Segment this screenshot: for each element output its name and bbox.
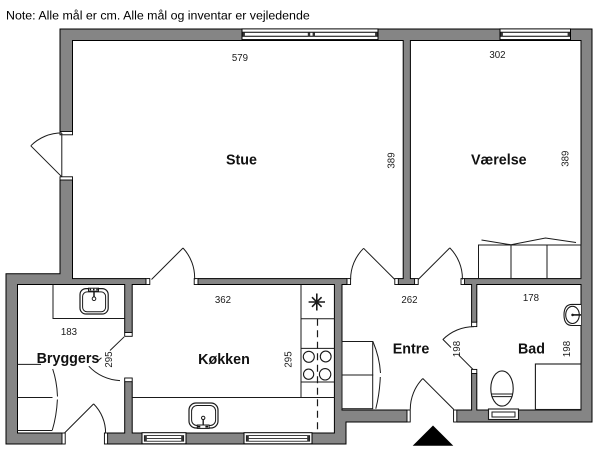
svg-text:302: 302 (489, 50, 505, 61)
svg-text:262: 262 (401, 295, 417, 306)
svg-text:295: 295 (284, 351, 295, 367)
svg-text:579: 579 (232, 53, 248, 64)
svg-text:183: 183 (61, 327, 77, 338)
svg-text:Bryggers: Bryggers (37, 351, 100, 367)
svg-text:198: 198 (452, 341, 463, 357)
svg-text:Stue: Stue (226, 152, 257, 168)
svg-text:389: 389 (387, 152, 398, 168)
svg-text:Køkken: Køkken (198, 352, 250, 368)
svg-text:178: 178 (523, 293, 539, 304)
svg-text:295: 295 (104, 352, 115, 368)
svg-text:Værelse: Værelse (471, 152, 527, 168)
svg-text:362: 362 (215, 295, 231, 306)
svg-text:198: 198 (562, 341, 573, 357)
svg-text:389: 389 (561, 151, 572, 167)
svg-text:Entre: Entre (393, 342, 430, 358)
svg-text:Note: Alle mål er cm. Alle mål: Note: Alle mål er cm. Alle mål og invent… (6, 8, 310, 22)
svg-text:Bad: Bad (518, 342, 545, 358)
